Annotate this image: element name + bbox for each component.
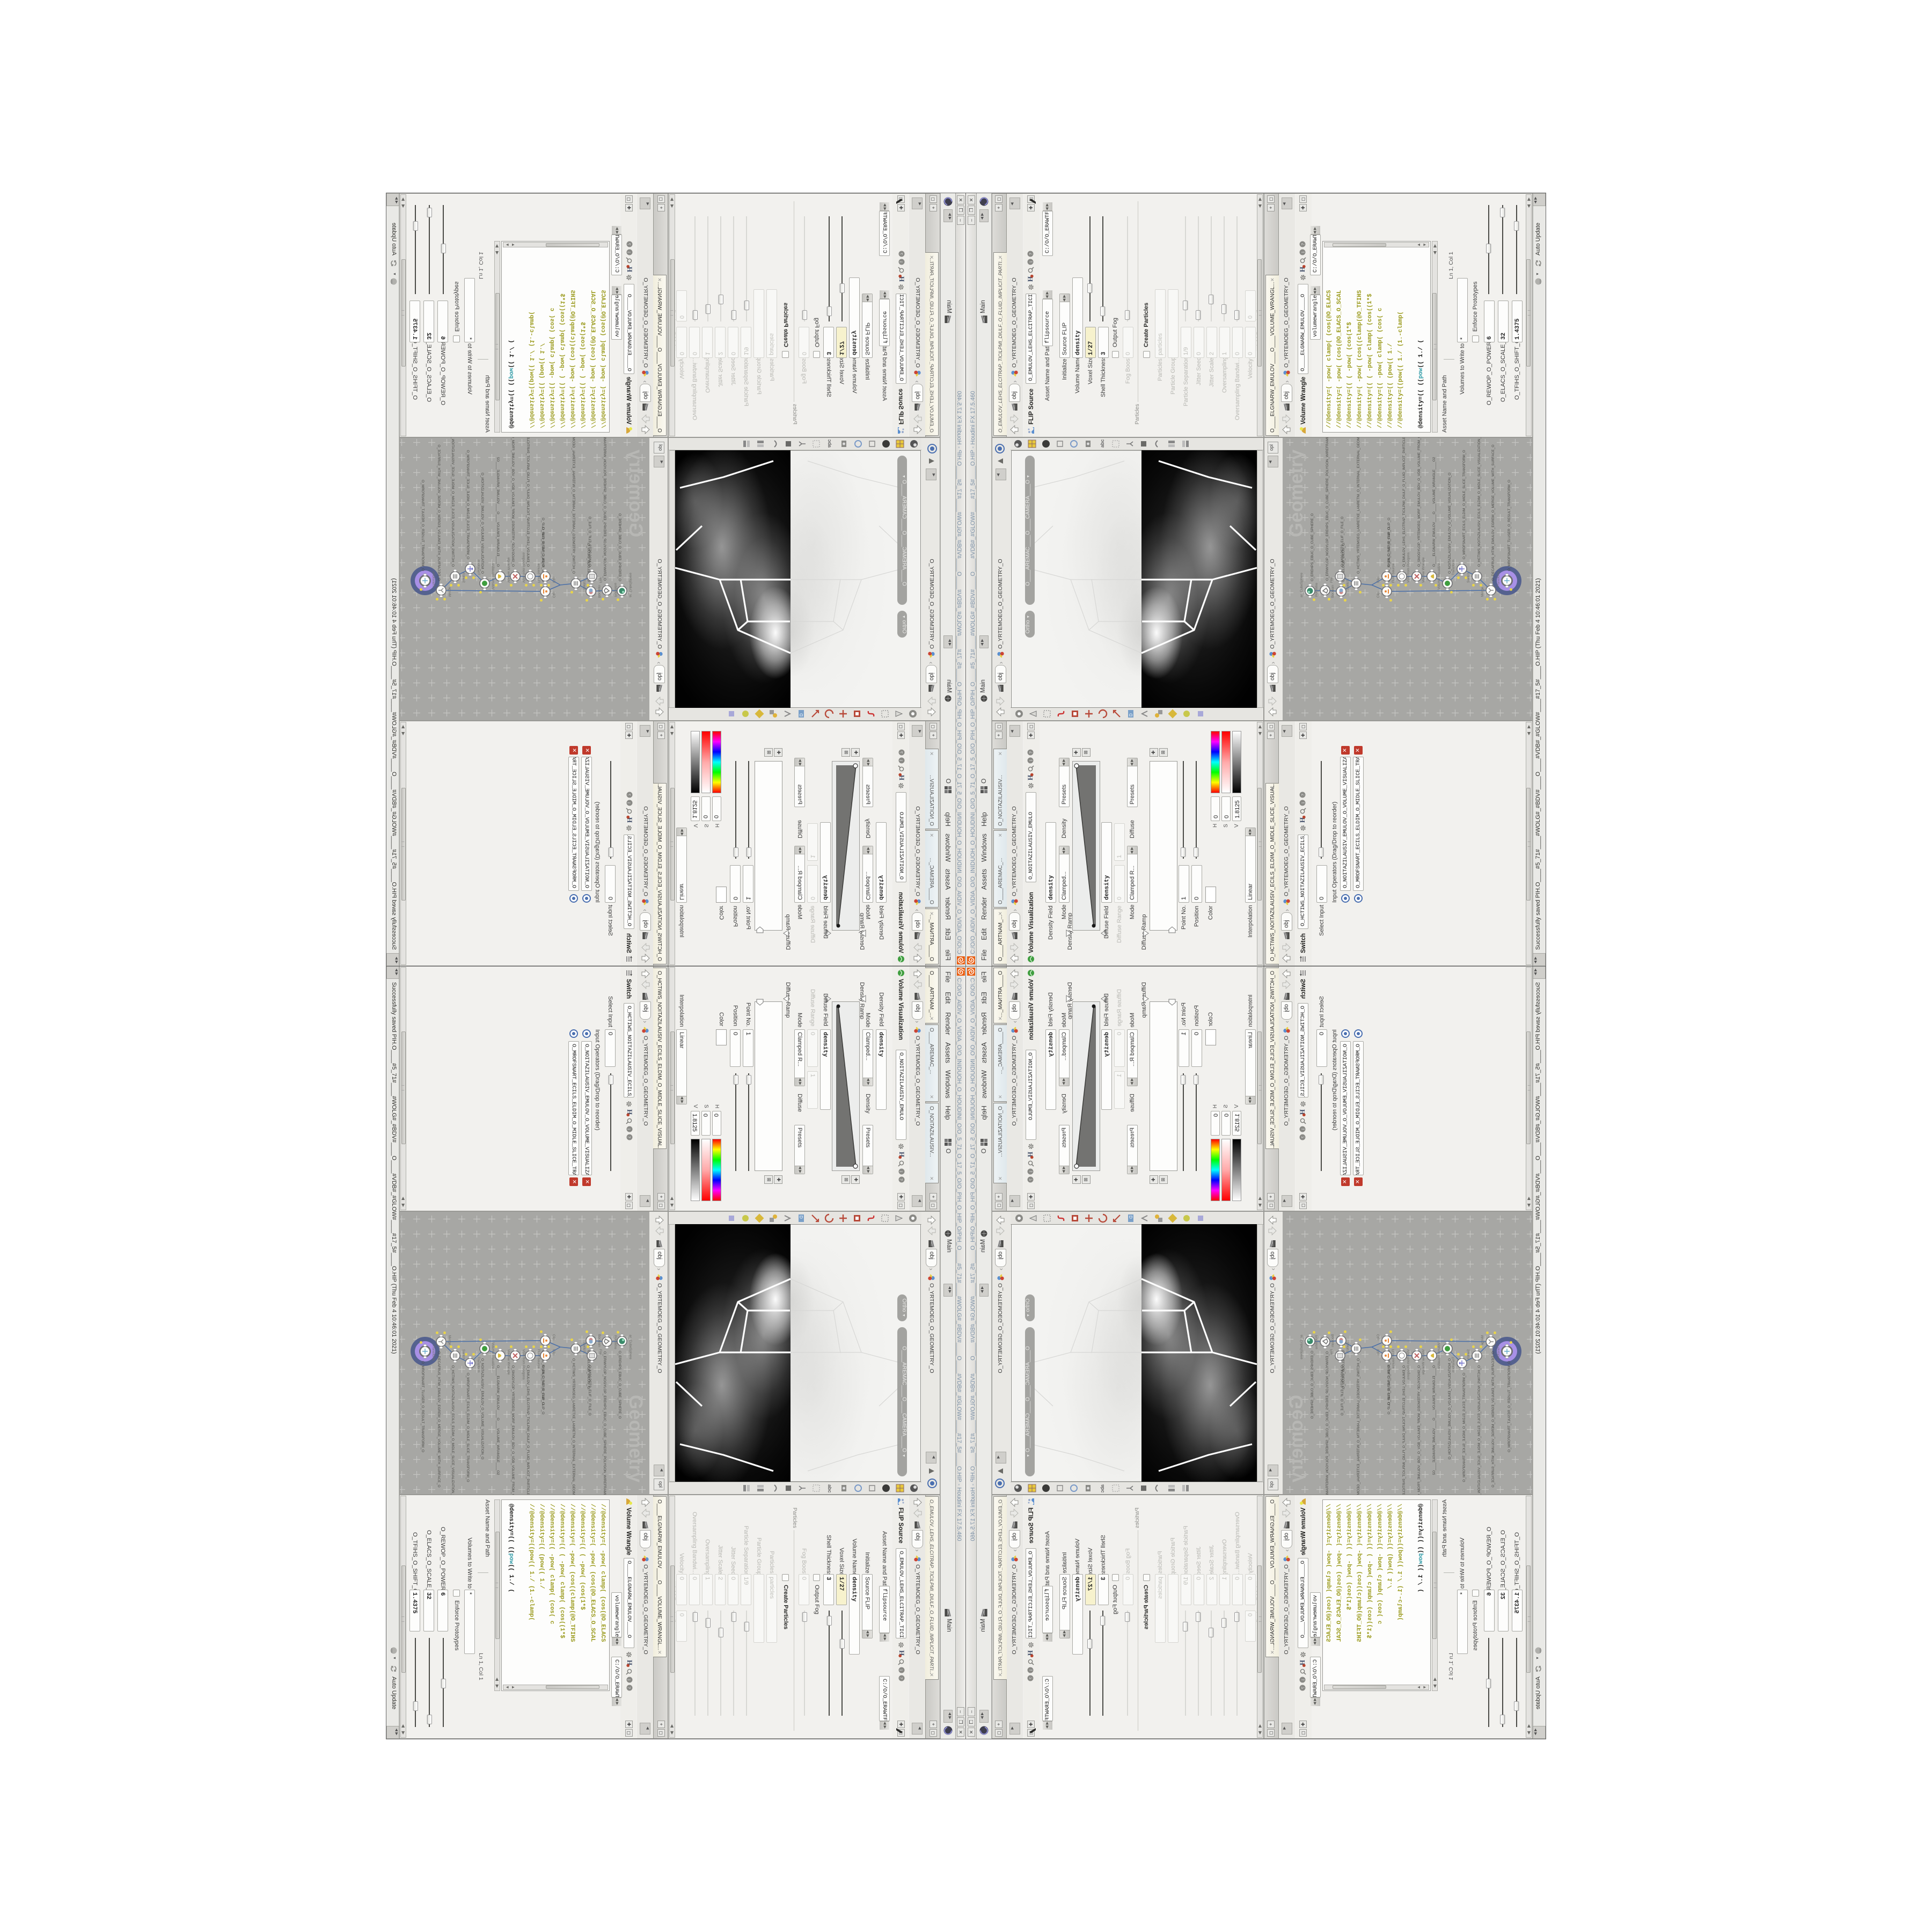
svg-text:?: ?: [1300, 243, 1305, 245]
svg-text:i: i: [627, 251, 632, 253]
svg-text:?: ?: [1300, 1687, 1305, 1689]
svg-text:?: ?: [627, 1687, 632, 1689]
svg-text:?: ?: [627, 243, 632, 245]
svg-text:i: i: [1300, 251, 1305, 253]
